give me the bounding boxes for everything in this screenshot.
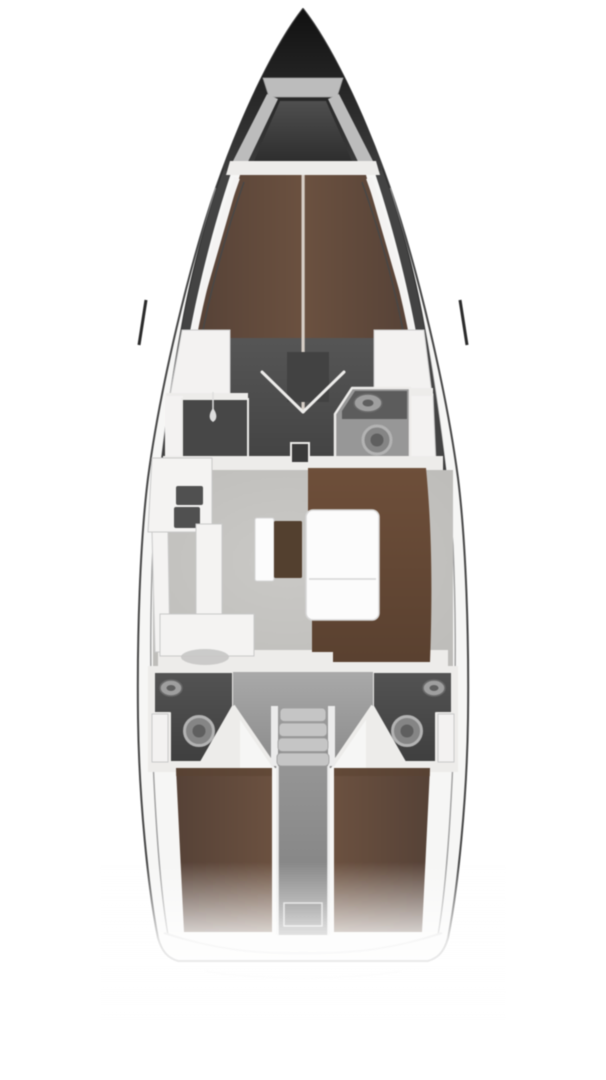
nav-station-seat	[255, 518, 274, 581]
galley-seat	[181, 649, 229, 665]
chainplate-mark-port	[139, 300, 146, 345]
yacht-floor-plan-page	[0, 0, 606, 1080]
chainplate-mark-starboard	[460, 300, 467, 345]
starboard-wardrobe	[374, 330, 432, 394]
stair-tread	[278, 738, 328, 752]
port-cockpit-locker	[152, 714, 168, 762]
salon-table	[306, 510, 379, 620]
salon	[148, 458, 453, 674]
stern-fade	[100, 862, 506, 1022]
stair-tread	[277, 753, 329, 766]
port-aft-sink-drain	[167, 685, 176, 691]
forward-head-toilet-bowl	[371, 434, 384, 447]
nav-station-chart-table	[274, 521, 302, 578]
starboard-side-locker-band	[408, 394, 436, 462]
mast-step	[291, 443, 309, 463]
starboard-aft-toilet-bowl	[401, 725, 414, 738]
companionway-stairs	[271, 706, 335, 766]
foredeck-crossbeam	[226, 161, 380, 175]
galley-counter-inner	[196, 524, 222, 620]
port-aft-toilet-bowl	[193, 725, 206, 738]
galley-sink-icon	[176, 486, 203, 505]
port-side-strip	[165, 396, 183, 462]
stair-tread	[280, 708, 326, 722]
anchor-locker-crossbar	[263, 78, 343, 97]
forward-head-sink-drain	[363, 400, 374, 407]
starboard-berth-head-shade	[334, 768, 430, 776]
shower-room	[182, 399, 248, 460]
starboard-cockpit-locker	[438, 714, 454, 762]
stair-tread	[279, 723, 327, 737]
port-berth-head-shade	[176, 768, 272, 776]
yacht-floor-plan	[0, 0, 606, 1080]
starboard-aft-sink-drain	[430, 685, 439, 691]
